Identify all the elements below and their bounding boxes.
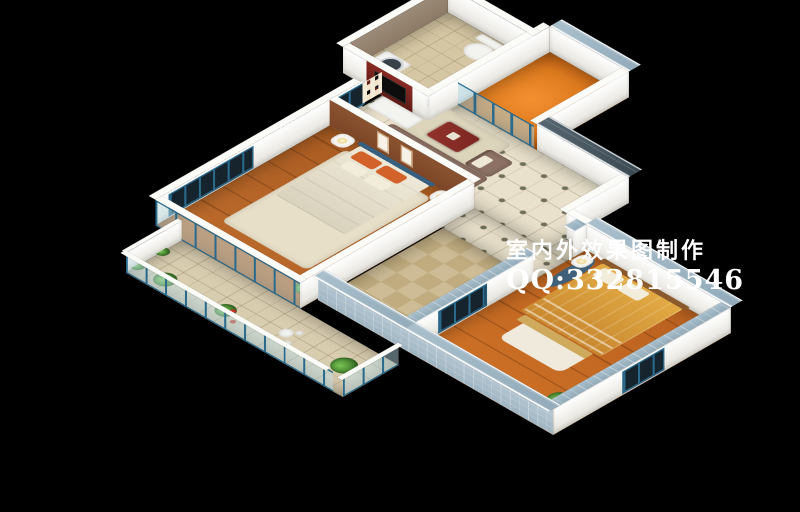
lamp (335, 137, 349, 145)
watermark-line2: QQ:332815546 (506, 265, 744, 296)
watermark-line1: 室内外效果图制作 (506, 233, 706, 265)
picture-frame (401, 144, 413, 168)
picture-frame (377, 131, 389, 155)
render-canvas: 室内外效果图制作 QQ:332815546 (0, 0, 800, 512)
